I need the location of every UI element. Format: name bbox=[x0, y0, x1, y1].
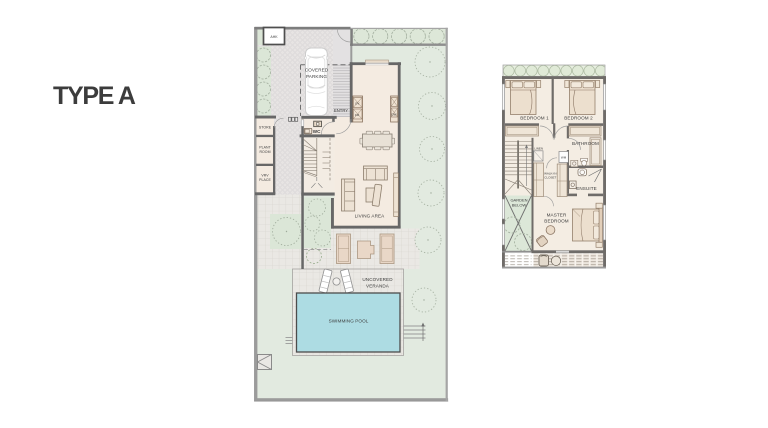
svg-text:PLACE: PLACE bbox=[259, 178, 271, 182]
svg-text:BEDROOM 2: BEDROOM 2 bbox=[564, 116, 593, 121]
svg-text:MASTER: MASTER bbox=[547, 212, 567, 217]
svg-text:BELOW: BELOW bbox=[512, 203, 527, 208]
svg-text:WC: WC bbox=[313, 129, 321, 134]
svg-text:TYPE A: TYPE A bbox=[53, 82, 136, 110]
svg-text:BATHROOM: BATHROOM bbox=[572, 141, 599, 146]
svg-text:ENSUITE: ENSUITE bbox=[576, 186, 597, 191]
svg-text:BEDROOM: BEDROOM bbox=[544, 219, 569, 224]
svg-text:VERANDA: VERANDA bbox=[366, 283, 390, 288]
svg-text:UNCOVERED: UNCOVERED bbox=[362, 277, 393, 282]
svg-text:BEDROOM 1: BEDROOM 1 bbox=[520, 116, 549, 121]
svg-text:ROOM: ROOM bbox=[259, 150, 270, 154]
svg-text:PARKING: PARKING bbox=[306, 74, 327, 79]
svg-text:LIVING AREA: LIVING AREA bbox=[355, 214, 386, 219]
svg-text:LINEN: LINEN bbox=[534, 146, 543, 150]
svg-text:PLANT: PLANT bbox=[259, 146, 271, 150]
svg-text:SWIMMING POOL: SWIMMING POOL bbox=[329, 319, 369, 324]
svg-text:DW: DW bbox=[392, 113, 397, 117]
svg-text:STORE: STORE bbox=[259, 126, 272, 130]
svg-text:AHK: AHK bbox=[270, 35, 278, 39]
svg-text:CLOSET: CLOSET bbox=[544, 176, 556, 180]
svg-text:VRV: VRV bbox=[261, 174, 269, 178]
svg-text:OV: OV bbox=[355, 102, 359, 106]
svg-text:COVERED: COVERED bbox=[305, 68, 329, 73]
svg-text:WM: WM bbox=[561, 156, 567, 160]
svg-text:ENTRY: ENTRY bbox=[334, 108, 348, 113]
